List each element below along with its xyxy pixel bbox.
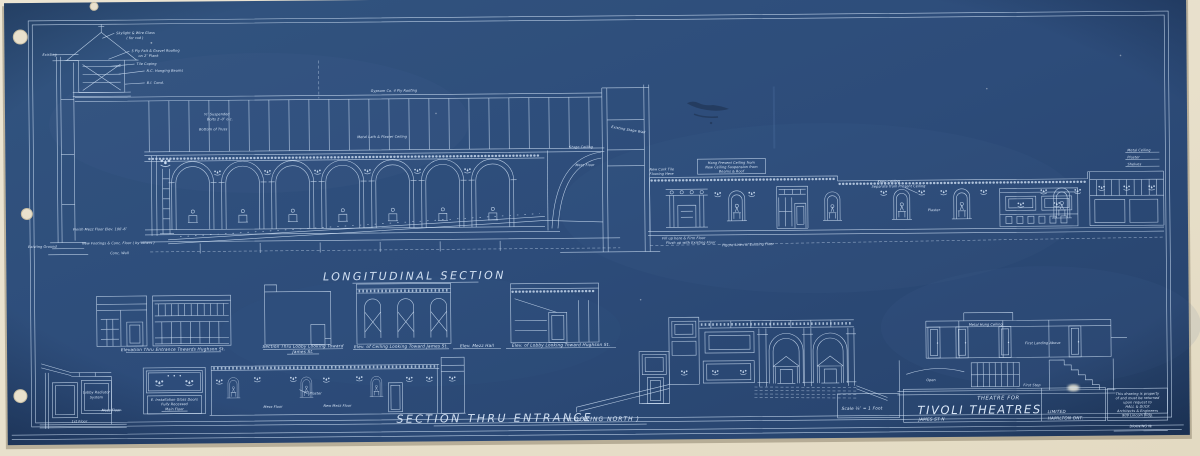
note-install-2: Fully Recessed	[161, 402, 188, 406]
note-truss-3: Bottom of Truss	[199, 127, 227, 131]
note-skylight-2: ( for rod )	[126, 36, 143, 40]
blueprint-sheet: Skylight & Wire Glass ( for rod ) 5 Ply …	[0, 0, 1200, 456]
caption-section-lobby-1: Section Thru Lobby Looking Toward	[262, 343, 343, 349]
note-cork-2: Flooring Here	[650, 172, 674, 176]
note-roof-spec: Gypsum Co. 4 Ply Roofing	[371, 89, 418, 93]
note-lobby-radiator-2: System	[90, 395, 104, 399]
caption-elev-lobby: Elev. of Lobby Looking Toward Hughson St…	[512, 342, 610, 348]
note-plaster-annex: Plaster	[928, 208, 941, 212]
heading-longitudinal-section: LONGITUDINAL SECTION	[323, 269, 506, 284]
note-metal-ceiling: Metal Ceiling	[1127, 148, 1151, 152]
heading-looking-north: ( LOOKING NORTH )	[563, 416, 639, 424]
title-scale: Scale ⅛″ = 1 Foot	[842, 406, 883, 411]
note-truss-2: Bolts 2′-0″ o.c.	[207, 117, 233, 121]
caption-elev-ceiling: Elev. of Ceiling Looking Toward James St…	[354, 343, 448, 349]
note-conc-wall: Conc. Wall	[110, 251, 129, 255]
title-city: HAMILTON ONT.	[1048, 415, 1084, 420]
note-tile-coping: Tile Coping	[137, 62, 158, 66]
title-street: JAMES ST N	[918, 416, 946, 421]
note-shelves: Shelves	[1127, 162, 1141, 166]
note-plaster-wall: Plaster	[309, 391, 322, 395]
caption-elev-mezz: Elev. Mezz Hall	[460, 343, 495, 348]
note-keep-2: Separate from Present Ceiling	[872, 184, 927, 188]
note-plaster-right: Plaster	[1127, 155, 1140, 159]
note-keep-1: Keep Ceiling	[878, 179, 901, 183]
stamp-line-6: 909 Lincoln Bldg.	[1122, 413, 1153, 417]
caption-elev-entrance: Elevation Thru Entrance Towards Hughson …	[121, 346, 225, 352]
note-mezz-floor-wall: Mezz Floor	[264, 405, 284, 409]
note-stage-ceiling: Stage Ceiling	[569, 145, 594, 149]
note-new-mezz-floor: New Mezz Floor	[324, 404, 352, 408]
note-roofing-2: on 2″ Plank	[138, 54, 159, 58]
note-open: Open	[926, 378, 936, 382]
sheet-group: Skylight & Wire Glass ( for rod ) 5 Ply …	[2, 0, 1200, 449]
note-skylight: Skylight & Wire Glass	[116, 31, 155, 35]
note-footings: New Footings & Conc. Floor ( by others )	[82, 241, 155, 246]
title-drawing-no: DRAWING №	[1130, 424, 1153, 428]
note-hanging-beams: R.C. Hanging Beams	[147, 69, 184, 73]
note-roofing: 5 Ply Felt & Gravel Roofing	[131, 49, 180, 53]
title-company: LIMITED	[1048, 409, 1067, 414]
note-metal-lath: Metal Lath & Plaster Ceiling	[357, 135, 408, 139]
note-existing-ground: Existing Ground	[28, 245, 57, 249]
title-project: THEATRE FOR	[977, 395, 1020, 401]
note-main-floor-panel: Main Floor	[165, 407, 184, 411]
note-fill-2: Flush up with Existing Floor	[666, 240, 716, 244]
caption-section-lobby-2: James St.	[291, 349, 313, 354]
note-mezz-floor-stage: Mezz Floor	[575, 163, 595, 167]
note-truss-1: ¾″ Suspended	[204, 112, 230, 116]
note-lobby-radiator-1: Lobby Radiator	[83, 390, 111, 394]
note-first-floor: 1st Floor	[72, 419, 88, 423]
note-existing: Existing	[42, 53, 57, 57]
note-first-step: First Step	[1023, 383, 1040, 387]
note-hang-3: Beams & Roof	[719, 169, 745, 173]
note-conduit: B.I. Cond.	[147, 81, 164, 85]
note-mezz-floor-marquee: Mezz Floor	[102, 408, 122, 412]
blueprint-photo: Skylight & Wire Glass ( for rod ) 5 Ply …	[0, 0, 1200, 456]
title-client: TIVOLI THEATRES	[917, 402, 1041, 417]
note-mezz-elev: Finish Mezz Floor Elev. 100′-6″	[73, 227, 128, 231]
note-metal-hung-ceiling: Metal Hung Ceiling	[969, 322, 1004, 326]
note-first-landing: First Landing Above	[1025, 341, 1061, 345]
